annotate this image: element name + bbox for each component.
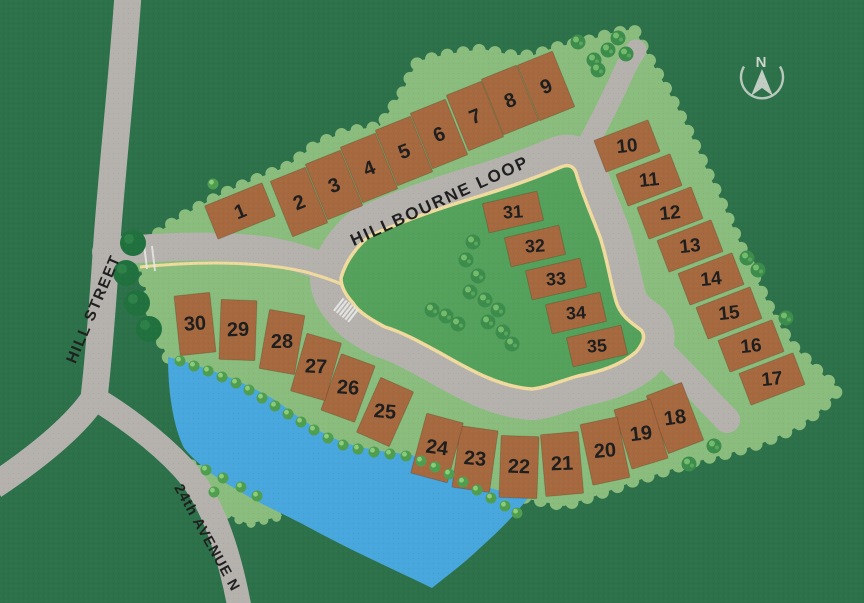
tree-icon [707,439,722,454]
tree-icon [231,378,242,389]
tree-icon [425,303,440,318]
tree-icon [175,356,186,367]
lot-number: 22 [507,456,530,479]
lot-number: 18 [662,406,687,431]
tree-icon [619,47,634,62]
tree-icon [270,401,281,412]
tree-icon [283,409,294,420]
tree-icon [505,337,520,352]
lot-29[interactable]: 29 [219,299,257,360]
tree-icon [496,325,511,340]
tree-icon [218,473,229,484]
tree-icon [611,31,626,46]
tree-icon [601,43,616,58]
tree-icon [257,393,268,404]
tree-icon [512,508,523,519]
lot-number: 17 [760,368,783,391]
tree-icon [481,315,496,330]
lot-number: 31 [502,201,523,222]
tree-icon [203,366,214,377]
tree-icon [401,451,412,462]
tree-icon [323,433,334,444]
lot-number: 19 [629,422,654,447]
tree-icon [296,417,307,428]
tree-icon [478,293,493,308]
tree-icon [416,456,427,467]
lot-number: 11 [638,169,661,192]
tree-icon [385,449,396,460]
tree-icon [571,35,586,50]
tree-icon [500,501,511,512]
tree-icon [430,462,441,473]
tree-icon [591,63,606,78]
lot-number: 20 [593,439,617,463]
tree-icon [779,311,794,326]
lot-number: 35 [586,335,607,356]
tree-icon [740,251,755,266]
lot-number: 29 [226,319,249,342]
lot-number: 16 [739,335,762,358]
tree-icon [201,465,212,476]
tree-icon [444,469,455,480]
tree-icon [338,440,349,451]
tree-icon [208,179,219,190]
tree-icon [209,487,220,498]
tree-icon [463,285,478,300]
tree-icon [244,385,255,396]
tree-icon [236,482,247,493]
lot-number: 32 [524,235,545,256]
site-plan-screenshot: 1 2 3 4 5 6 7 8 9 10 11 12 13 14 15 16 1… [0,0,864,603]
tree-icon [124,290,150,316]
tree-icon [458,477,469,488]
tree-icon [491,303,506,318]
lot-number: 28 [271,331,293,353]
lot-number: 23 [463,447,487,471]
tree-icon [189,361,200,372]
compass-north-label: N [756,54,767,71]
lot-number: 25 [373,400,397,424]
tree-icon [472,485,483,496]
tree-icon [471,269,486,284]
site-plan-map: 1 2 3 4 5 6 7 8 9 10 11 12 13 14 15 16 1… [0,0,864,603]
lot-30[interactable]: 30 [174,292,216,355]
lot-number: 15 [717,302,741,325]
tree-icon [353,444,364,455]
tree-icon [451,317,466,332]
lot-number: 21 [550,453,573,476]
tree-icon [369,447,380,458]
tree-icon [120,230,146,256]
lot-number: 27 [304,355,327,378]
tree-icon [466,235,481,250]
lot-number: 26 [336,376,360,399]
tree-icon [486,493,497,504]
lot-number: 24 [424,436,450,461]
tree-icon [252,491,263,502]
lot-number: 33 [545,268,566,289]
lot-number: 10 [615,135,638,158]
lot-number: 34 [565,302,586,323]
tree-icon [682,457,697,472]
lot-number: 12 [658,202,681,225]
tree-icon [136,316,162,342]
tree-icon [751,263,766,278]
lot-number: 13 [678,235,701,258]
tree-icon [459,253,474,268]
lot-21[interactable]: 21 [540,431,583,496]
tree-icon [309,425,320,436]
lot-number: 14 [699,268,723,291]
tree-icon [217,372,228,383]
lot-number: 30 [183,312,207,335]
lot-22[interactable]: 22 [499,435,539,498]
